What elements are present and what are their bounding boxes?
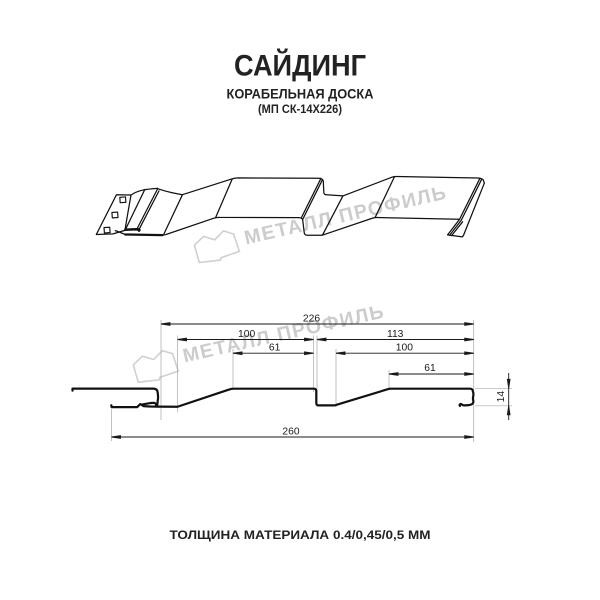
svg-text:ТОЛЩИНА МАТЕРИАЛА 0.4/0,45/0,5: ТОЛЩИНА МАТЕРИАЛА 0.4/0,45/0,5 ММ [170, 528, 431, 542]
svg-text:САЙДИНГ: САЙДИНГ [234, 49, 366, 83]
svg-text:260: 260 [282, 427, 299, 438]
svg-text:100: 100 [396, 343, 413, 354]
svg-text:226: 226 [303, 313, 320, 324]
svg-text:14: 14 [496, 391, 507, 403]
svg-text:100: 100 [238, 329, 255, 340]
svg-text:(МП СК-14Х226): (МП СК-14Х226) [258, 103, 342, 116]
svg-text:МЕТАЛЛ ПРОФИЛЬ: МЕТАЛЛ ПРОФИЛЬ [181, 301, 386, 368]
svg-text:61: 61 [269, 343, 281, 354]
svg-text:КОРАБЕЛЬНАЯ ДОСКА: КОРАБЕЛЬНАЯ ДОСКА [227, 87, 374, 103]
svg-text:МЕТАЛЛ ПРОФИЛЬ: МЕТАЛЛ ПРОФИЛЬ [242, 182, 448, 249]
svg-text:113: 113 [387, 329, 404, 340]
svg-text:61: 61 [424, 363, 436, 374]
